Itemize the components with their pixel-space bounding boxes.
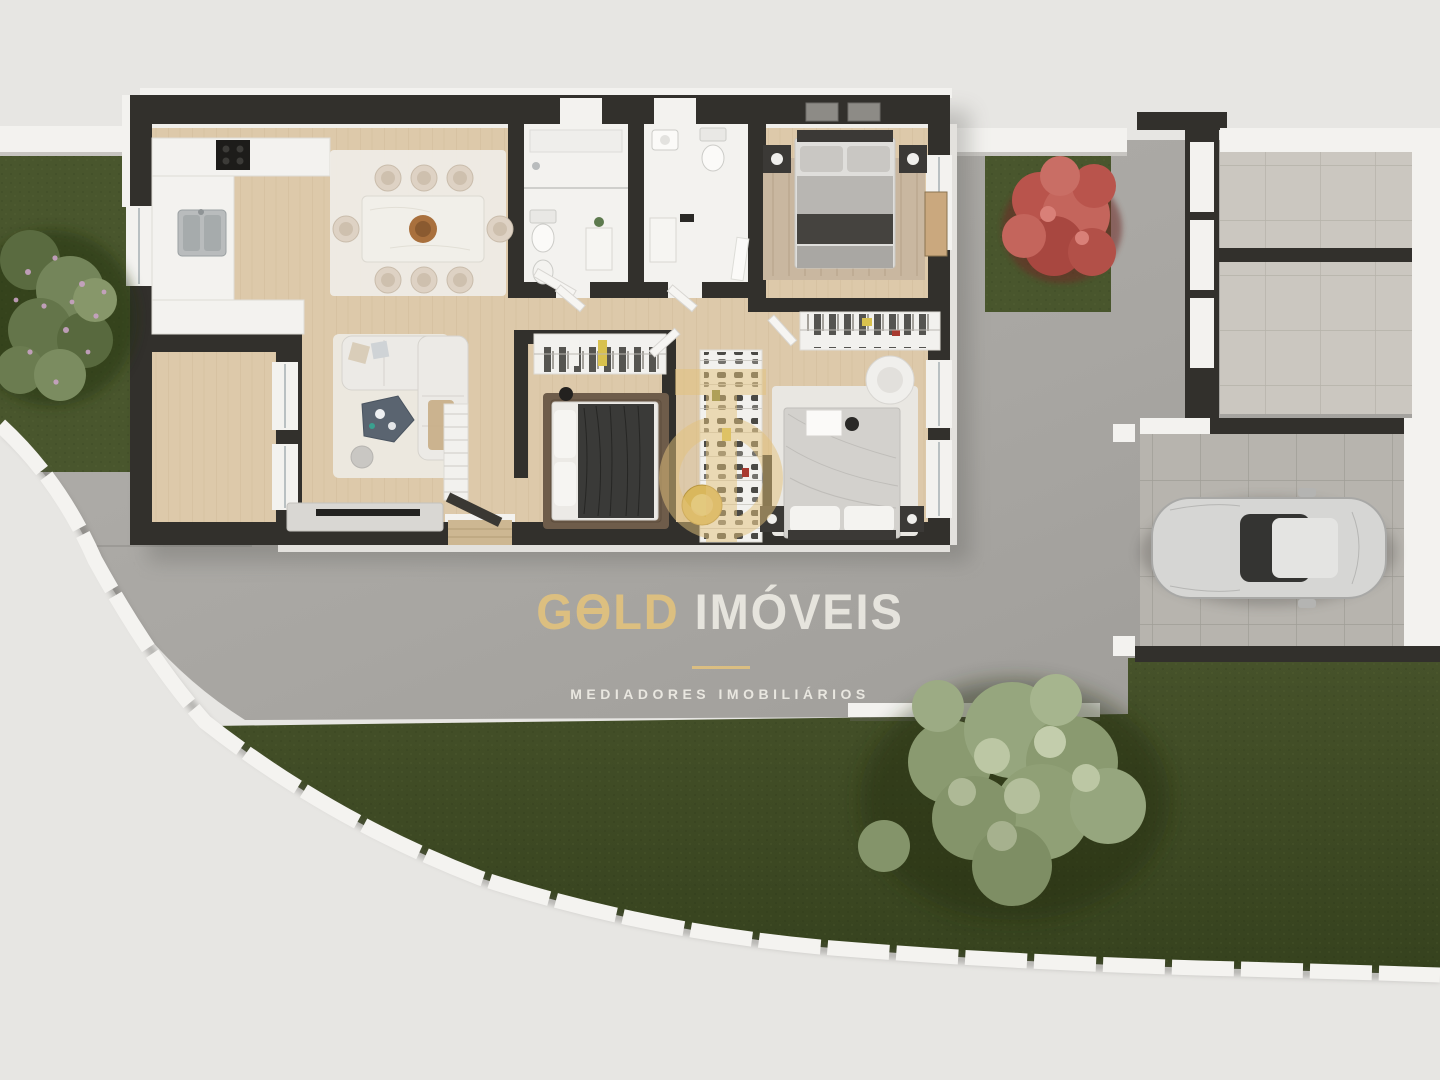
pillow (790, 506, 840, 532)
wall-art (806, 103, 838, 121)
shoe-accent (722, 428, 731, 441)
cooktop-icon (216, 140, 250, 170)
toilet-icon (530, 210, 556, 252)
nightstand (760, 506, 784, 532)
clothes-accent (892, 330, 900, 336)
site-plan (0, 0, 1440, 1080)
toiletry-icon (680, 214, 694, 222)
bed-bench (797, 246, 893, 268)
patio-room-1 (1220, 152, 1412, 250)
clothes-accent (570, 340, 579, 366)
sofa-pillow (371, 341, 390, 360)
clothes-accent (598, 340, 607, 366)
garage (1113, 418, 1440, 662)
patio-roof-edge (1220, 128, 1440, 152)
shoe-accent (712, 390, 720, 401)
shower-head-icon (532, 162, 540, 170)
garage-trim-topleft (1140, 418, 1210, 436)
wardrobe-open (534, 334, 666, 374)
glass-door (1190, 220, 1214, 290)
patio-door-band (1185, 130, 1219, 430)
entry-steps (448, 520, 512, 545)
bed-double (552, 402, 658, 520)
patio-wall-top (1137, 112, 1227, 130)
window-bedroom3-east-2 (926, 440, 952, 518)
nightstand (899, 145, 927, 173)
clothes-accent (862, 318, 872, 326)
pillow (800, 146, 843, 172)
duvet (578, 404, 654, 518)
window-bathroom2-north (654, 98, 696, 124)
shower-bench (530, 130, 622, 152)
kitchen-peninsula (152, 300, 304, 334)
bed-double (795, 130, 895, 268)
wardrobe-open (800, 312, 940, 350)
accent-chair-cushion (691, 494, 713, 516)
plant-icon (594, 217, 604, 227)
wall-art (848, 103, 880, 121)
garage-wall-bottom (1135, 646, 1440, 662)
table-centerpiece-inner (415, 221, 431, 237)
window-living-west-1 (272, 362, 298, 430)
window-living-west-2 (272, 444, 298, 510)
pouf (351, 446, 373, 468)
window-desk (925, 192, 947, 256)
folded-blanket (797, 214, 893, 244)
pillow (844, 506, 894, 532)
window-kitchen-west (126, 206, 152, 286)
headboard (797, 130, 893, 142)
shoe-accent (742, 468, 749, 477)
bedroom-2 (534, 334, 669, 529)
headboard (788, 530, 896, 540)
round-lounge-chair-cushion (877, 367, 903, 393)
glass-door (1190, 298, 1214, 368)
garage-post (1113, 424, 1135, 442)
fence-top-left-shadow (0, 152, 140, 156)
car-mirror (1298, 488, 1316, 497)
pillow (554, 462, 576, 506)
window-bathroom1-north (560, 98, 602, 124)
dining-area (330, 150, 513, 296)
duvet (797, 176, 893, 214)
glass-door (1190, 142, 1214, 212)
patio-wall-right (1412, 128, 1440, 418)
pillow (847, 146, 890, 172)
courtyard-wall (955, 128, 1127, 152)
ladder-shelf (444, 404, 468, 500)
fence-top-left (0, 126, 140, 152)
tv-console (287, 503, 443, 531)
pillow (554, 410, 576, 458)
garage-post (1113, 636, 1135, 656)
car-mirror (1298, 599, 1316, 608)
car (1152, 488, 1386, 608)
nightstand (763, 145, 791, 173)
floor-plan-render: GOLDIMÓVEIS MEDIADORES IMOBILIÁRIOS (0, 0, 1440, 1080)
bedside-lamp-icon (559, 387, 573, 401)
nightstand (900, 506, 924, 532)
patio-room-2 (1220, 262, 1412, 414)
tv-icon (316, 509, 420, 516)
window-bedroom3-east-1 (926, 360, 952, 428)
garage-wall-right (1404, 418, 1440, 658)
kitchen-sink-icon (178, 209, 226, 256)
vanity-sink-icon (652, 130, 678, 150)
courtyard-wall-shadow (955, 152, 1127, 156)
patio-divider-wall (1210, 248, 1440, 262)
bath-cabinet (650, 218, 676, 262)
trim-south (278, 545, 950, 552)
car-roof-panel (1272, 518, 1338, 578)
house (122, 88, 957, 552)
